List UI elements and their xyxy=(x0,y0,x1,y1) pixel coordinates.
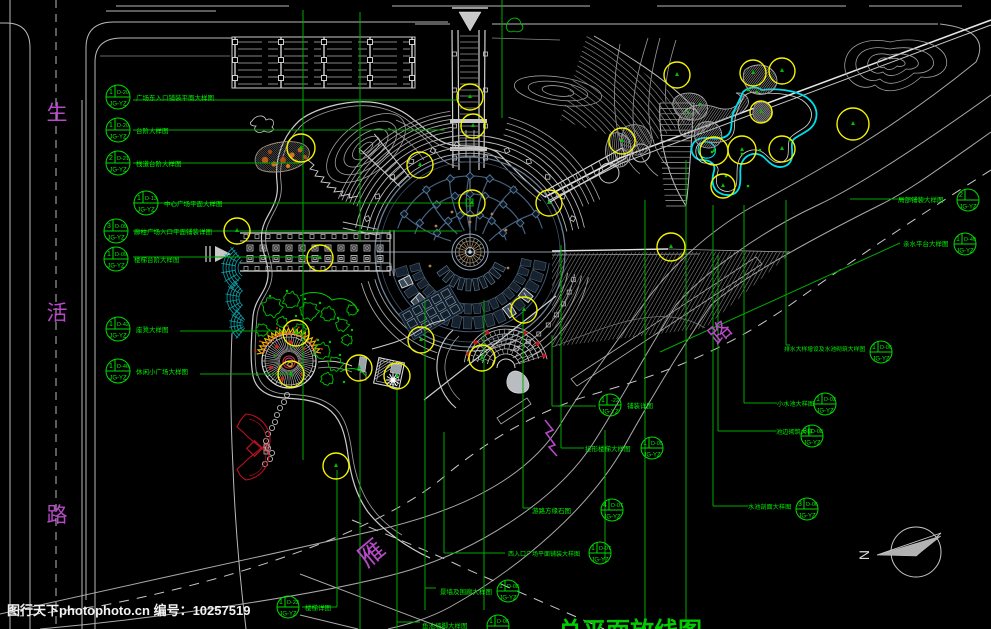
svg-text:游路方缘石图: 游路方缘石图 xyxy=(532,506,571,515)
svg-text:JG-YZ: JG-YZ xyxy=(956,249,974,255)
svg-text:1: 1 xyxy=(499,583,503,590)
svg-text:D-06: D-06 xyxy=(497,619,509,625)
svg-text:生: 生 xyxy=(47,102,68,125)
svg-text:小水池大样图: 小水池大样图 xyxy=(777,400,814,408)
svg-text:JG-YZ: JG-YZ xyxy=(109,102,127,108)
svg-text:D-08: D-08 xyxy=(507,584,519,590)
svg-text:台阶大样图: 台阶大样图 xyxy=(136,126,169,135)
svg-text:广场东入口铺装平面大样图: 广场东入口铺装平面大样图 xyxy=(136,93,214,102)
svg-text:3: 3 xyxy=(107,223,111,230)
svg-text:JG-YZ: JG-YZ xyxy=(643,453,661,459)
svg-text:鱼池墙脚大样图: 鱼池墙脚大样图 xyxy=(422,621,468,629)
svg-text:1: 1 xyxy=(872,344,876,351)
svg-text:3: 3 xyxy=(803,428,807,435)
svg-text:1: 1 xyxy=(279,599,283,606)
svg-text:2: 2 xyxy=(959,192,963,199)
svg-text:JG-YZ: JG-YZ xyxy=(137,208,155,214)
svg-text:水池剖面大样图: 水池剖面大样图 xyxy=(748,503,791,511)
svg-text:D-20: D-20 xyxy=(117,123,129,129)
svg-text:总平面放线图: 总平面放线图 xyxy=(558,617,702,629)
svg-text:楼梯详图: 楼梯详图 xyxy=(305,603,331,612)
svg-text:D-06: D-06 xyxy=(880,345,892,351)
svg-text:1: 1 xyxy=(601,397,605,404)
svg-text:1: 1 xyxy=(109,321,113,328)
svg-text:局部铺装大样图: 局部铺装大样图 xyxy=(898,195,944,204)
svg-text:1: 1 xyxy=(489,618,493,625)
svg-text:1: 1 xyxy=(816,396,820,403)
svg-text:1: 1 xyxy=(643,440,647,447)
svg-text:D-02: D-02 xyxy=(824,397,836,403)
svg-text:西入口广场平面铺装大样图: 西入口广场平面铺装大样图 xyxy=(508,550,580,558)
svg-text:2: 2 xyxy=(109,155,113,162)
svg-text:JG-YZ: JG-YZ xyxy=(107,236,125,242)
svg-text:D-09: D-09 xyxy=(115,252,127,258)
svg-text:N: N xyxy=(856,550,872,560)
svg-text:D-06: D-06 xyxy=(806,502,818,508)
svg-text:活: 活 xyxy=(47,302,68,325)
svg-text:楼梯台阶大样图: 楼梯台阶大样图 xyxy=(134,255,180,264)
svg-text:JG-YZ: JG-YZ xyxy=(279,612,297,618)
svg-text:栈道台阶大样图: 栈道台阶大样图 xyxy=(136,159,182,168)
svg-text:路: 路 xyxy=(47,504,68,527)
svg-text:JG-YZ: JG-YZ xyxy=(109,376,127,382)
svg-text:JG-YZ: JG-YZ xyxy=(109,334,127,340)
svg-text:JG-YZ: JG-YZ xyxy=(107,264,125,270)
svg-text:D-46: D-46 xyxy=(117,364,129,370)
svg-text:JG-YZ: JG-YZ xyxy=(872,357,890,363)
svg-text:D-07: D-07 xyxy=(599,546,611,552)
svg-text:D-09: D-09 xyxy=(115,224,127,230)
svg-text:-22: -22 xyxy=(611,398,619,404)
svg-text:铺装详图: 铺装详图 xyxy=(627,401,653,410)
svg-text:JG-YZ: JG-YZ xyxy=(591,558,609,564)
svg-text:D-08: D-08 xyxy=(811,429,823,435)
svg-text:D-05: D-05 xyxy=(651,441,663,447)
svg-text:JG-YZ: JG-YZ xyxy=(816,409,834,415)
svg-text:1: 1 xyxy=(109,122,113,129)
svg-text:D-42: D-42 xyxy=(117,322,129,328)
svg-text:JG-YZ: JG-YZ xyxy=(109,135,127,141)
svg-text:亲水平台大样图: 亲水平台大样图 xyxy=(903,239,949,248)
svg-text:图行天下photophoto.cn 编号：10257519: 图行天下photophoto.cn 编号：10257519 xyxy=(7,603,250,618)
svg-text:1: 1 xyxy=(109,363,113,370)
svg-text:4: 4 xyxy=(603,502,607,509)
svg-text:JG-YZ: JG-YZ xyxy=(499,596,517,602)
svg-text:D-07: D-07 xyxy=(611,503,623,509)
svg-text:3: 3 xyxy=(798,501,802,508)
svg-text:休闲小广场大样图: 休闲小广场大样图 xyxy=(136,367,188,376)
svg-text:JG-YZ: JG-YZ xyxy=(959,205,977,211)
svg-text:景墙及围廊大样图: 景墙及围廊大样图 xyxy=(440,587,492,596)
svg-text:1: 1 xyxy=(109,89,113,96)
svg-text:排水大样增设及水池砌筑大样图: 排水大样增设及水池砌筑大样图 xyxy=(784,345,865,353)
svg-text:JG-YZ: JG-YZ xyxy=(601,410,619,416)
svg-text:1: 1 xyxy=(107,251,111,258)
svg-text:JG-YZ: JG-YZ xyxy=(109,168,127,174)
svg-text:JG-YZ: JG-YZ xyxy=(798,514,816,520)
svg-text:D-13: D-13 xyxy=(145,196,157,202)
svg-text:D-20: D-20 xyxy=(117,90,129,96)
svg-text:廊柱广场入口平面铺装详图: 廊柱广场入口平面铺装详图 xyxy=(134,227,212,236)
svg-text:1: 1 xyxy=(591,545,595,552)
svg-text:1: 1 xyxy=(956,236,960,243)
svg-text:座凳大样图: 座凳大样图 xyxy=(136,325,169,334)
svg-text:JG-YZ: JG-YZ xyxy=(803,441,821,447)
svg-text:中心广场平面大样图: 中心广场平面大样图 xyxy=(164,199,223,208)
svg-text:池边砌筑大样: 池边砌筑大样 xyxy=(776,428,813,436)
svg-text:D-21: D-21 xyxy=(117,156,129,162)
svg-text:接形楼梯大样图: 接形楼梯大样图 xyxy=(585,444,631,453)
svg-text:JG-YZ: JG-YZ xyxy=(603,515,621,521)
svg-text:D-22: D-22 xyxy=(287,600,299,606)
svg-text:1: 1 xyxy=(137,195,141,202)
svg-text:D-40: D-40 xyxy=(964,237,976,243)
